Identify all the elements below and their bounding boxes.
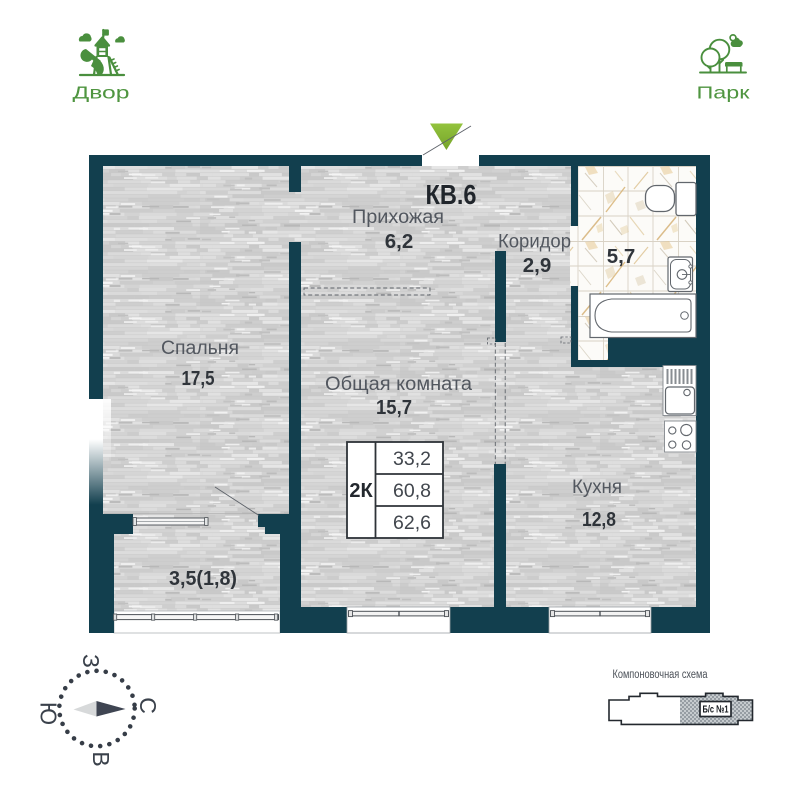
- svg-text:6,2: 6,2: [385, 230, 414, 253]
- svg-text:Парк: Парк: [697, 83, 750, 103]
- svg-text:КВ.6: КВ.6: [426, 179, 477, 210]
- svg-text:2,9: 2,9: [523, 254, 552, 277]
- svg-text:62,6: 62,6: [393, 512, 431, 534]
- svg-text:5,7: 5,7: [607, 245, 636, 268]
- svg-text:12,8: 12,8: [582, 508, 616, 531]
- svg-text:Коридор: Коридор: [498, 232, 571, 253]
- svg-text:15,7: 15,7: [376, 396, 412, 419]
- svg-text:3,5(1,8): 3,5(1,8): [169, 567, 237, 590]
- svg-text:17,5: 17,5: [182, 367, 215, 390]
- svg-text:Б/с №1: Б/с №1: [703, 704, 729, 716]
- svg-text:Прихожая: Прихожая: [352, 207, 444, 228]
- svg-text:60,8: 60,8: [393, 480, 431, 502]
- svg-text:Ю: Ю: [36, 702, 62, 725]
- svg-text:З: З: [78, 654, 104, 668]
- svg-text:2К: 2К: [349, 480, 373, 502]
- svg-text:В: В: [88, 751, 114, 766]
- svg-text:Кухня: Кухня: [572, 477, 622, 498]
- svg-text:Двор: Двор: [73, 83, 130, 103]
- svg-text:С: С: [135, 697, 161, 714]
- svg-text:Общая комната: Общая комната: [325, 374, 472, 395]
- svg-text:Спальня: Спальня: [161, 338, 239, 359]
- svg-text:33,2: 33,2: [393, 448, 431, 470]
- svg-text:Компоновочная схема: Компоновочная схема: [613, 669, 708, 681]
